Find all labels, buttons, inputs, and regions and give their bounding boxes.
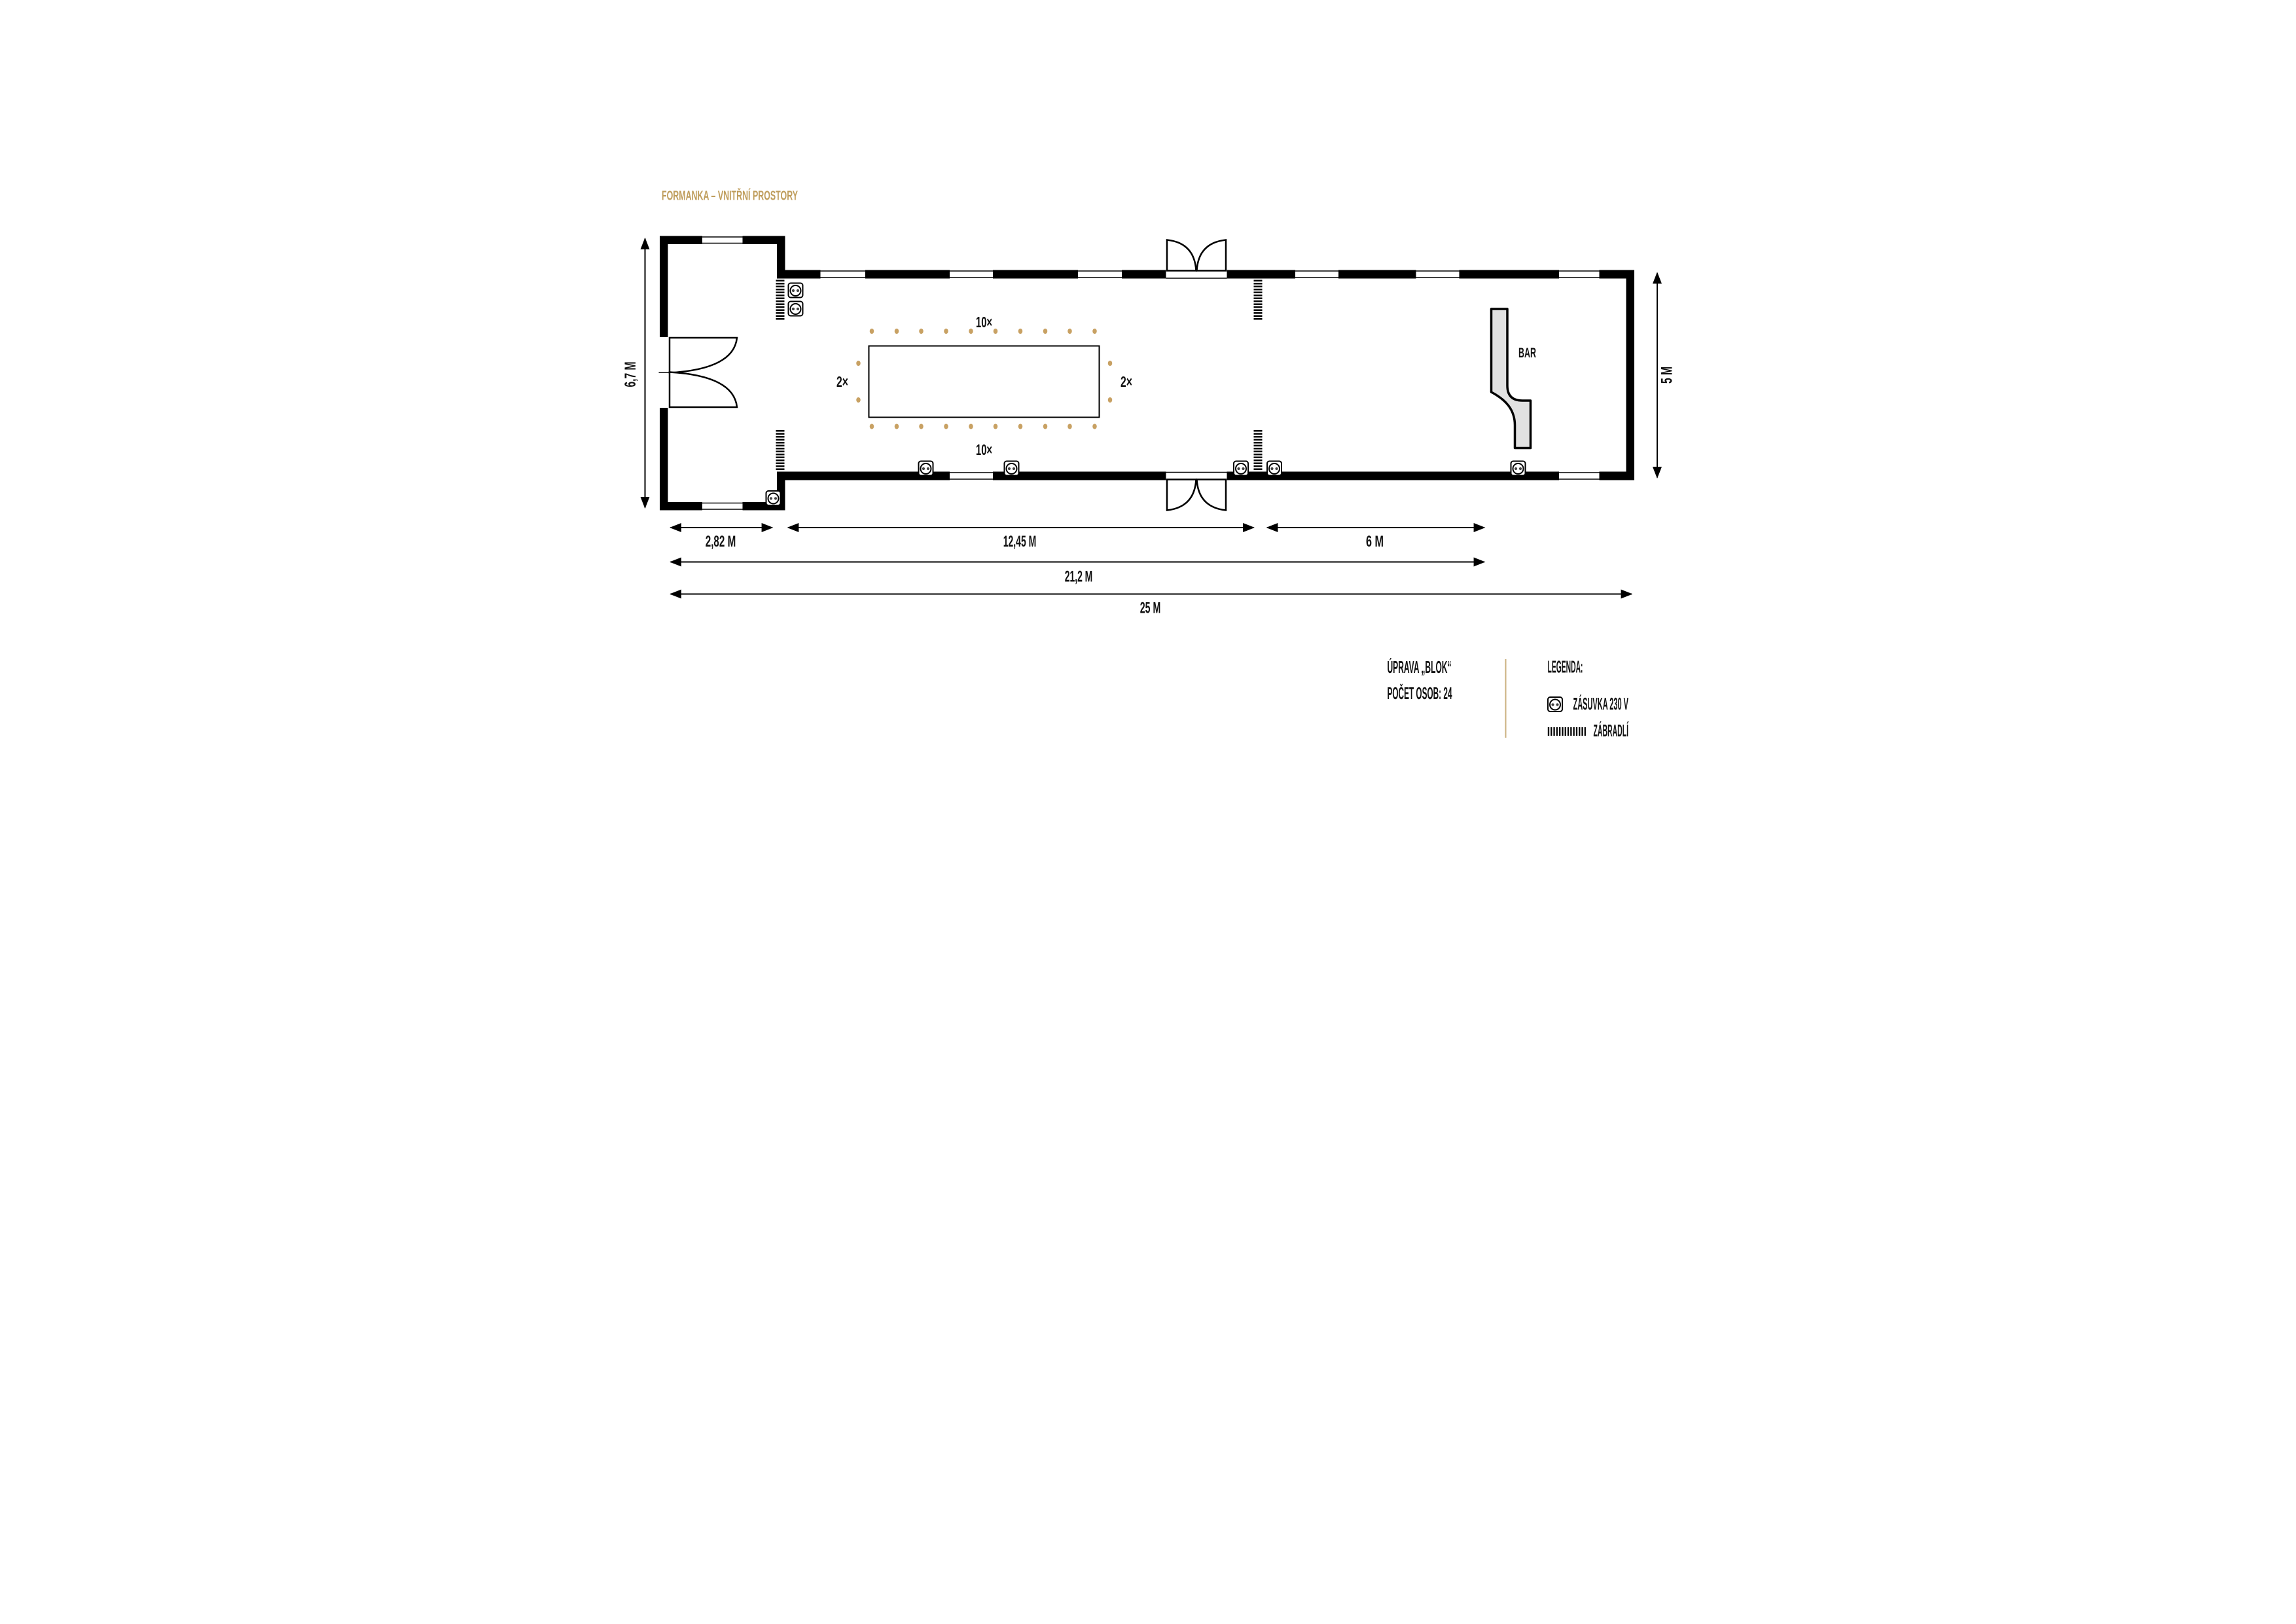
walls [660, 236, 1634, 511]
socket-icon [919, 461, 933, 476]
persons-note: POČET OSOB: 24 [1388, 683, 1452, 703]
window-icon [702, 501, 743, 511]
seat-dot [1067, 424, 1072, 429]
socket-icon [1005, 461, 1019, 476]
legend-railing-label: ZÁBRADLÍ [1594, 721, 1629, 740]
footer-divider [1505, 659, 1507, 738]
railing-icon [1254, 280, 1263, 321]
seat-dot [944, 329, 948, 334]
socket-icon [789, 283, 803, 298]
window-icon [950, 471, 993, 481]
dim-hall-right: 6 M [1366, 533, 1384, 550]
seat-count-right: 2× [1121, 373, 1132, 390]
seat-dot [944, 424, 948, 429]
banquet-table [869, 346, 1100, 418]
socket-icon [1234, 461, 1248, 476]
seat-count-left: 2× [836, 373, 848, 390]
socket-icon [1548, 697, 1562, 712]
hall-right-wall [1626, 270, 1635, 480]
seat-dot [969, 329, 973, 334]
dim-hall-height: 5 M [1659, 367, 1676, 384]
seat-dot [1018, 424, 1023, 429]
seat-dot [994, 424, 998, 429]
window-icon [950, 270, 993, 280]
notes-block: ÚPRAVA „BLOK“ POČET OSOB: 24 [1388, 657, 1452, 703]
seat-count-top: 10× [976, 314, 992, 331]
entrance-door-icon [659, 337, 738, 408]
seat-dot [895, 424, 899, 429]
window-icon [1078, 270, 1122, 280]
bar-counter [1492, 309, 1531, 448]
seat-dot [870, 424, 874, 429]
seat-dot [895, 329, 899, 334]
seat-dot [856, 361, 861, 366]
window-icon [1559, 471, 1600, 481]
railing-icon [1254, 429, 1263, 471]
dim-inner-span: 21,2 M [1065, 568, 1093, 586]
page-title: FORMANKA – VNITŘNÍ PROSTORY [662, 188, 798, 204]
seat-dot [856, 397, 861, 403]
socket-icon [766, 491, 781, 505]
seat-dot [1043, 424, 1048, 429]
floor-plan-canvas: FORMANKA – VNITŘNÍ PROSTORY [574, 0, 1722, 812]
socket-icon [1267, 461, 1282, 476]
seat-dot [919, 424, 924, 429]
window-icon [1559, 270, 1600, 280]
bar-label: BAR [1518, 346, 1536, 361]
seat-count-bottom: 10× [976, 441, 992, 458]
seat-dot [1043, 329, 1048, 334]
arrangement-note: ÚPRAVA „BLOK“ [1388, 657, 1452, 677]
legend-block: LEGENDA: ZÁSUVKA 230 V ZÁBRADLÍ [1548, 657, 1629, 741]
seat-dot [1067, 329, 1072, 334]
top-door-icon [1166, 240, 1227, 280]
seat-dot [969, 424, 973, 429]
socket-icon [789, 302, 803, 316]
seat-dot [1092, 424, 1097, 429]
legend-socket-label: ZÁSUVKA 230 V [1573, 694, 1629, 713]
seat-dot [870, 329, 874, 334]
dim-total-length: 25 M [1140, 600, 1161, 617]
seat-dot [994, 329, 998, 334]
seat-dot [1018, 329, 1023, 334]
bottom-door-icon [1166, 471, 1227, 511]
window-icon [821, 270, 866, 280]
window-icon [1416, 270, 1460, 280]
window-icon [702, 236, 743, 245]
railing-icon [776, 280, 785, 321]
seat-dot [1108, 361, 1113, 366]
floor-plan-page: FORMANKA – VNITŘNÍ PROSTORY [574, 0, 1722, 812]
dim-hall-left: 12,45 M [1003, 533, 1037, 550]
window-icon [1295, 270, 1338, 280]
socket-icon [1511, 461, 1526, 476]
dim-anteroom-height: 6,7 M [622, 362, 639, 388]
railing-icon [1548, 727, 1587, 736]
railing-icon [776, 429, 785, 471]
seat-dot [1108, 397, 1113, 403]
seat-dot [1092, 329, 1097, 334]
seat-dot [919, 329, 924, 334]
dim-anteroom-width: 2,82 M [706, 533, 736, 550]
legend-heading: LEGENDA: [1548, 657, 1583, 677]
